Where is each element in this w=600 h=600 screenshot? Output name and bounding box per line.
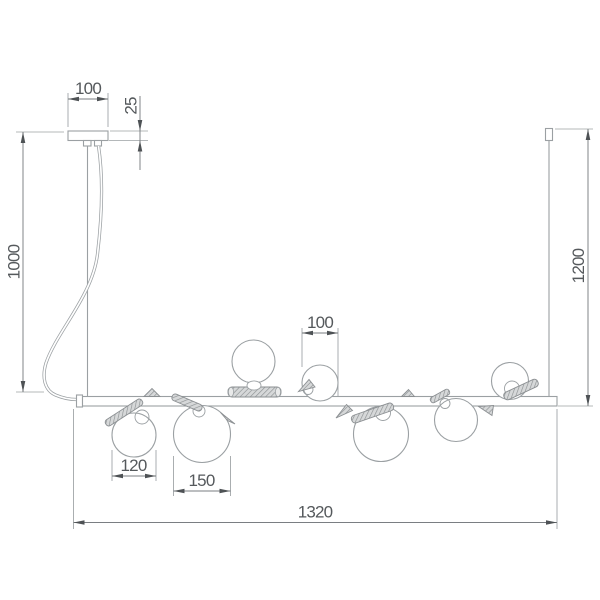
dimension-label-canopy-width: 100 [75,79,101,98]
power-cord-highlight [44,146,102,400]
globe-bottom-right [435,399,478,442]
arrowhead [21,132,26,143]
dimension-label-globe-top: 100 [307,313,333,332]
canopy-stem-wire [84,141,92,147]
peg-bar-top-left [144,389,160,397]
bar-end-cap-left [77,395,83,407]
led-tube-endcap-right [275,387,280,396]
dimension-label-globe-150: 150 [189,471,215,490]
drawing-canvas: 100 25 1000 1200 [0,0,600,600]
arrowhead [74,520,85,525]
globe-neck-top-center [247,381,261,390]
dimension-canopy-offset: 25 [109,96,148,170]
arrowhead [586,395,591,406]
dimension-canopy-width: 100 [68,79,108,127]
arrowhead [138,120,143,131]
pendant-light-dimension-drawing: 100 25 1000 1200 [0,0,600,600]
dimension-label-total-length: 1320 [298,503,333,522]
arrowhead [174,489,185,494]
canopy-stem-cord [95,141,102,147]
dimension-left-suspension: 1000 [5,132,65,392]
peg-bar-top-mid [402,390,415,397]
ceiling-canopy [68,131,108,141]
globe-top-center [232,340,275,383]
led-tube-endcap-left [228,387,233,396]
dimension-label-right-suspension: 1200 [569,248,588,283]
arrowhead [220,489,231,494]
arrowhead [138,141,143,152]
arrowhead [21,381,26,392]
dimension-label-globe-120: 120 [121,456,147,475]
peg-globe-right-side [479,406,494,416]
dimension-right-suspension: 1200 [555,129,593,406]
arrowhead [586,129,591,140]
fixture-geometry [44,129,557,463]
dimensions: 100 25 1000 1200 [5,79,594,529]
ceiling-fitting-right [546,129,553,141]
arrowhead [546,520,557,525]
dimension-label-left-suspension: 1000 [5,244,24,279]
dimension-label-canopy-offset: 25 [122,97,141,115]
arrowhead [145,474,156,479]
